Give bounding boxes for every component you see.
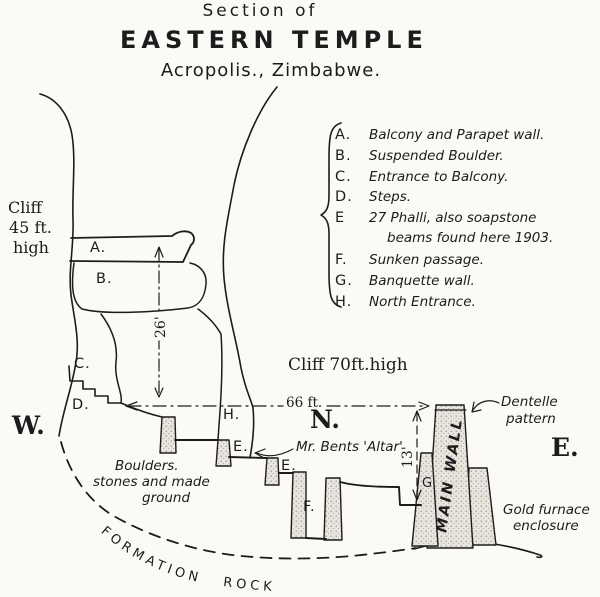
gold-furnace-label-2: enclosure [513, 519, 579, 534]
marker-f: F. [303, 500, 316, 516]
recess-c-outline [101, 314, 121, 403]
diagram-page: 26' 13' MAIN WALL FORMATION ROCK Section… [0, 0, 600, 597]
legend-text-b: Suspended Boulder. [369, 148, 504, 164]
dentelle-arrow [473, 401, 499, 410]
boulders-label-1: Boulders. [115, 459, 179, 474]
legend-row-b: B.Suspended Boulder. [335, 145, 504, 164]
boulders-label-2: stones and made [93, 475, 210, 490]
legend-key-h: H. [335, 294, 369, 310]
wall-pillar-1 [160, 417, 176, 453]
cliff-west-label-3: high [13, 239, 49, 257]
marker-b: B. [96, 272, 113, 288]
marker-d: D. [72, 398, 90, 414]
dentelle-label-2: pattern [506, 412, 556, 427]
legend-text-h: North Entrance. [369, 294, 476, 310]
dim-66-label: 66 ft. [286, 396, 322, 411]
boulder-b-outline [73, 263, 207, 312]
dentelle-label-1: Dentelle [501, 395, 558, 410]
sunken-passage-floor [306, 538, 326, 539]
formation-rock-label: FORMATION ROCK [98, 524, 276, 595]
legend-text-e2: beams found here 1903. [387, 230, 553, 246]
legend-text-c: Entrance to Balcony. [369, 169, 508, 185]
altar-label: Mr. Bents 'Altar' [296, 440, 403, 455]
marker-c: C. [74, 357, 91, 373]
page-title-prefix: Section of [180, 2, 340, 21]
legend-row-f: F.Sunken passage. [335, 249, 484, 268]
legend-key-g: G. [335, 273, 369, 289]
ground-level-4 [340, 482, 421, 505]
legend-key-e: E [335, 210, 369, 226]
dim-26-label: 26' [153, 316, 169, 338]
balcony-a-outline [70, 231, 194, 262]
compass-west: W. [12, 412, 45, 440]
wall-pillar-3 [265, 458, 279, 485]
marker-e2: E. [281, 459, 297, 475]
sunken-passage-right-wall [324, 478, 342, 540]
marker-e1: E. [233, 440, 249, 456]
cliff-east-label: Cliff 70ft.high [288, 356, 408, 375]
boulders-label-3: ground [142, 491, 190, 506]
legend-key-f: F. [335, 252, 369, 268]
legend-row-e2: beams found here 1903. [387, 227, 553, 246]
legend-text-e: 27 Phalli, also soapstone [369, 210, 536, 226]
legend-text-a: Balcony and Parapet wall. [369, 127, 544, 143]
inner-rock-edge [198, 309, 222, 440]
legend-key-d: D. [335, 189, 369, 205]
compass-east: E. [551, 434, 579, 462]
formation-rock-text: FORMATION ROCK [98, 524, 276, 595]
east-cliff-line [223, 87, 277, 458]
legend-row-g: G.Banquette wall. [335, 270, 475, 289]
west-cliff-line [40, 94, 77, 436]
legend-text-f: Sunken passage. [369, 252, 484, 268]
legend-key-a: A. [335, 127, 369, 143]
page-subtitle: Acropolis., Zimbabwe. [121, 61, 421, 81]
legend-row-c: C.Entrance to Balcony. [335, 166, 508, 185]
legend-key-b: B. [335, 148, 369, 164]
cliff-west-label-1: Cliff [8, 199, 42, 217]
legend-key-c: C. [335, 169, 369, 185]
marker-g: G [422, 477, 433, 491]
marker-a: A. [90, 241, 106, 257]
legend-row-d: D.Steps. [335, 186, 411, 205]
legend-text-d: Steps. [369, 189, 411, 205]
legend-row-a: A.Balcony and Parapet wall. [335, 124, 544, 143]
legend-row-e: E27 Phalli, also soapstone [335, 207, 536, 226]
marker-h: H. [223, 408, 240, 424]
gold-furnace-label-1: Gold furnace [503, 503, 590, 518]
altar-arrowhead [255, 449, 265, 458]
altar-pillar [216, 440, 231, 466]
legend-row-h: H.North Entrance. [335, 291, 476, 310]
page-title: EASTERN TEMPLE [120, 27, 420, 53]
legend-text-g: Banquette wall. [369, 273, 475, 289]
cliff-west-label-2: 45 ft. [9, 219, 52, 237]
